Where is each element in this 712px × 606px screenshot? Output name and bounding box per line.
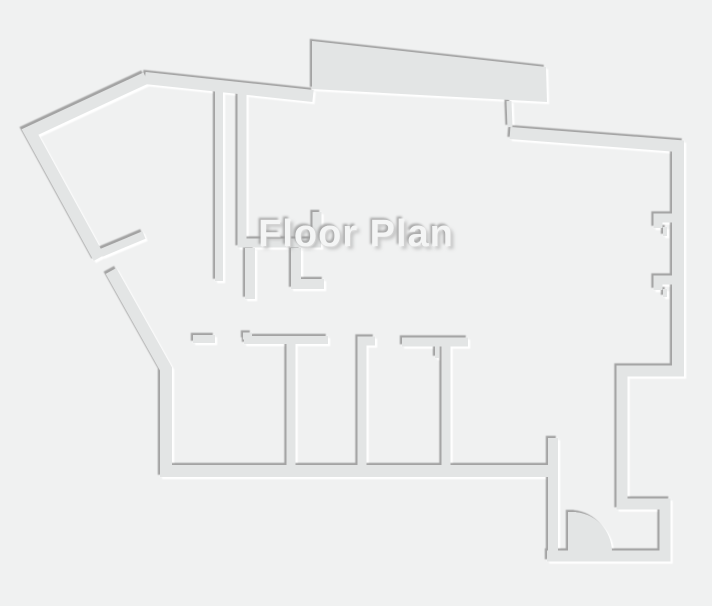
top-protrusion-band — [312, 41, 547, 102]
outer-wall-top-right-and-right — [510, 133, 678, 371]
alcove-walls-right-bottom — [547, 371, 684, 556]
floor-plan-drawing — [0, 0, 712, 606]
outer-wall-lower-diagonal-left-bottom — [111, 271, 553, 471]
walls-group — [30, 41, 684, 556]
door-swing-arc — [572, 512, 612, 552]
closet-walls — [242, 93, 321, 243]
outer-wall-top-left-diagonal — [30, 78, 146, 258]
diagonal-door-jamb — [101, 235, 144, 253]
outer-wall-top — [145, 78, 313, 96]
room-divider-2 — [362, 341, 375, 466]
closet-door-jamb-right — [296, 248, 324, 284]
band-connector-wall — [509, 101, 510, 127]
